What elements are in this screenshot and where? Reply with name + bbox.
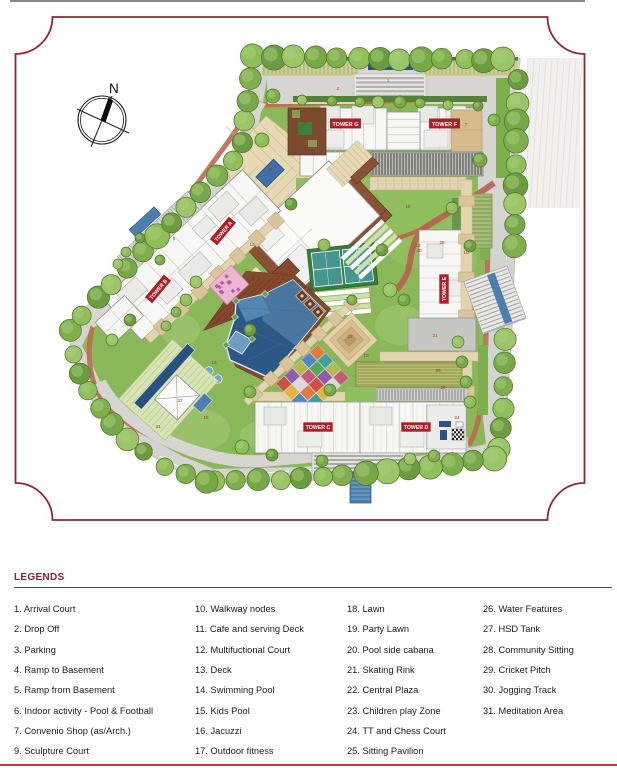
svg-text:21: 21	[432, 333, 438, 338]
svg-text:4: 4	[149, 214, 152, 219]
svg-text:28: 28	[439, 240, 445, 245]
svg-text:10: 10	[363, 353, 369, 358]
svg-text:TOWER C: TOWER C	[306, 425, 331, 431]
svg-text:TOWER D: TOWER D	[404, 425, 429, 431]
svg-text:27: 27	[177, 398, 183, 403]
svg-text:18: 18	[405, 204, 411, 209]
svg-text:5: 5	[173, 236, 176, 241]
svg-text:24: 24	[454, 415, 460, 420]
svg-text:6: 6	[304, 120, 307, 125]
svg-text:22: 22	[347, 334, 353, 339]
svg-text:16: 16	[203, 415, 209, 420]
svg-text:30: 30	[416, 248, 422, 253]
svg-text:29: 29	[435, 368, 441, 373]
svg-text:26: 26	[267, 167, 273, 172]
svg-text:1: 1	[387, 78, 390, 83]
svg-text:7: 7	[465, 122, 468, 127]
svg-text:TOWER G: TOWER G	[332, 122, 358, 128]
svg-text:N: N	[109, 81, 119, 96]
svg-text:13: 13	[249, 242, 255, 247]
svg-text:28: 28	[440, 385, 446, 390]
svg-text:2: 2	[337, 86, 340, 91]
svg-text:TOWER F: TOWER F	[432, 122, 458, 128]
svg-text:31: 31	[155, 424, 161, 429]
svg-text:14: 14	[265, 328, 271, 333]
svg-text:15: 15	[211, 360, 217, 365]
svg-text:TOWER E: TOWER E	[442, 276, 448, 301]
